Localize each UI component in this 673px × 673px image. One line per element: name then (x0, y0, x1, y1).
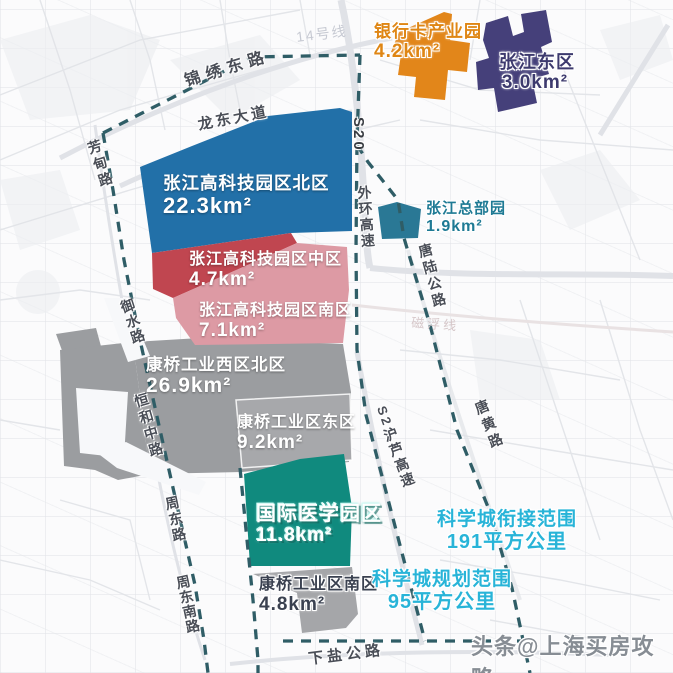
region-label-zhangjiang-mid: 张江高科技园区中区 4.7km² (189, 251, 342, 290)
road-label-s20: S20 (350, 117, 367, 153)
region-label-zhangjiang-south: 张江高科技园区南区 7.1km² (199, 302, 352, 341)
region-area: 11.8km² (256, 525, 382, 546)
region-area: 7.1km² (199, 320, 352, 341)
region-area: 4.2km² (374, 41, 482, 62)
region-name: 康桥工业区南区 (259, 576, 378, 594)
region-label-medical-park: 国际医学园区 11.8km² (256, 503, 382, 547)
region-name: 张江高科技园区南区 (199, 302, 352, 320)
region-area: 4.8km² (259, 594, 378, 615)
boundary-area: 191平方公里 (436, 531, 578, 554)
region-label-zhangjiang-north: 张江高科技园区北区 22.3km² (163, 174, 330, 218)
region-label-bankcard-park: 银行卡产业园 4.2km² (374, 22, 482, 62)
boundary-label-connection-range: 科学城衔接范围 191平方公里 (436, 509, 578, 554)
region-label-zhangjiang-hq: 张江总部园 1.9km² (426, 201, 506, 236)
boundary-name: 科学城衔接范围 (436, 509, 578, 531)
region-name: 张江高科技园区北区 (163, 174, 330, 194)
region-name: 康桥工业区东区 (237, 414, 356, 432)
region-label-kangqiao-south: 康桥工业区南区 4.8km² (259, 576, 378, 615)
boundary-label-planning-range: 科学城规划范围 95平方公里 (371, 569, 513, 614)
boundary-area: 95平方公里 (371, 591, 513, 614)
region-area: 22.3km² (163, 194, 330, 219)
region-area: 1.9km² (426, 218, 506, 236)
region-area: 26.9km² (146, 374, 286, 398)
region-name: 银行卡产业园 (374, 22, 482, 41)
region-area: 4.7km² (189, 269, 342, 290)
road-label-maglev-line: 磁浮线 (411, 312, 460, 334)
region-name: 张江总部园 (426, 201, 506, 218)
region-label-kangqiao-east: 康桥工业区东区 9.2km² (237, 414, 356, 453)
zhangjiang-science-city-planning-map: 张江高科技园区北区 22.3km² 张江高科技园区中区 4.7km² 张江高科技… (0, 0, 673, 673)
region-name: 康桥工业西区北区 (146, 356, 286, 374)
watermark-toutiao-account: 头条@上海买房攻略 (471, 629, 673, 673)
region-name: 张江高科技园区中区 (189, 251, 342, 269)
region-name: 张江东区 (499, 52, 571, 72)
region-area: 9.2km² (237, 432, 356, 453)
region-area: 3.0km² (499, 72, 571, 93)
highway-bands (60, 0, 673, 664)
region-name: 国际医学园区 (256, 503, 382, 525)
region-label-zhangjiang-east: 张江东区 3.0km² (499, 52, 571, 93)
region-label-kangqiao-west-north: 康桥工业西区北区 26.9km² (146, 356, 286, 398)
boundary-name: 科学城规划范围 (371, 569, 513, 591)
